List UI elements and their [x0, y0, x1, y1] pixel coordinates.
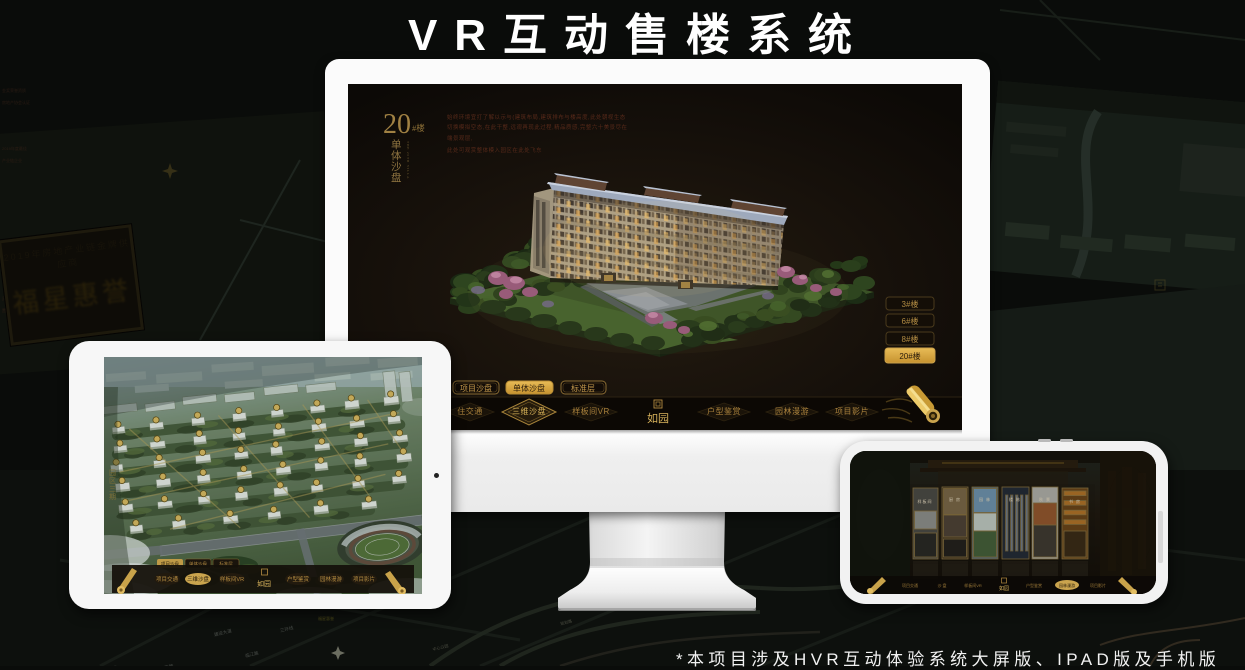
svg-text:项目影片: 项目影片: [1090, 582, 1106, 588]
svg-text:切换模拟空态,在此干整,远观再现此过程,精品质感,完整六十美: 切换模拟空态,在此干整,远观再现此过程,精品质感,完整六十美景尽在: [447, 123, 628, 131]
svg-text:如园: 如园: [999, 585, 1009, 592]
svg-text:标准层: 标准层: [571, 383, 595, 393]
svg-text:如园: 如园: [257, 579, 271, 588]
svg-text:园林漫游: 园林漫游: [1059, 582, 1075, 588]
svg-text:园林漫游: 园林漫游: [775, 406, 809, 416]
svg-text:项目影片: 项目影片: [353, 575, 375, 583]
svg-text:端景观层,: 端景观层,: [447, 134, 473, 142]
svg-text:项目交通: 项目交通: [902, 582, 918, 588]
svg-text:单体沙盘: 单体沙盘: [513, 383, 545, 393]
svg-text:8#楼: 8#楼: [902, 334, 919, 344]
svg-text:户型鉴赏: 户型鉴赏: [1026, 582, 1042, 588]
svg-text:沙 盘: 沙 盘: [937, 582, 946, 588]
svg-text:#楼: #楼: [412, 123, 425, 133]
svg-text:此处可观赏整体模入园区在此处飞东: 此处可观赏整体模入园区在此处飞东: [447, 146, 542, 154]
svg-text:体: 体: [391, 150, 402, 162]
svg-text:样板间VR: 样板间VR: [220, 575, 244, 583]
svg-text:房地产协会认证: 房地产协会认证: [2, 99, 30, 105]
svg-text:THE 20TH VILLA: THE 20TH VILLA: [406, 141, 410, 179]
svg-text:项目影片: 项目影片: [835, 406, 869, 416]
svg-text:园林漫游: 园林漫游: [320, 575, 343, 583]
svg-text:户型鉴赏: 户型鉴赏: [287, 575, 310, 583]
svg-text:2019年度最佳: 2019年度最佳: [2, 145, 27, 151]
svg-text:金奖荣誉资质: 金奖荣誉资质: [2, 87, 26, 93]
svg-text:户型鉴赏: 户型鉴赏: [707, 406, 741, 416]
svg-text:样板间VR: 样板间VR: [572, 406, 610, 416]
svg-text:三维沙盘: 三维沙盘: [187, 575, 210, 583]
svg-text:如园: 如园: [647, 411, 669, 425]
svg-text:产业链企业: 产业链企业: [2, 157, 22, 163]
svg-text:盘: 盘: [391, 171, 402, 184]
svg-text:项目沙盘: 项目沙盘: [460, 383, 492, 393]
svg-text:始终环境宜打了解以示与(建筑布局,建筑排布与楼高度,此处朝视: 始终环境宜打了解以示与(建筑布局,建筑排布与楼高度,此处朝视生态: [447, 113, 626, 121]
svg-text:3#楼: 3#楼: [902, 299, 919, 309]
svg-text:20#楼: 20#楼: [899, 351, 920, 361]
svg-text:单: 单: [391, 139, 402, 151]
svg-text:20: 20: [383, 109, 411, 140]
svg-text:项目交通: 项目交通: [156, 575, 179, 583]
svg-text:三维沙盘: 三维沙盘: [512, 406, 546, 416]
svg-text:住交通: 住交通: [457, 406, 483, 416]
svg-text:福星惠誉: 福星惠誉: [318, 615, 334, 621]
svg-text:沙: 沙: [391, 161, 402, 173]
svg-text:样板间VR: 样板间VR: [964, 582, 982, 588]
svg-text:6#楼: 6#楼: [902, 316, 919, 326]
